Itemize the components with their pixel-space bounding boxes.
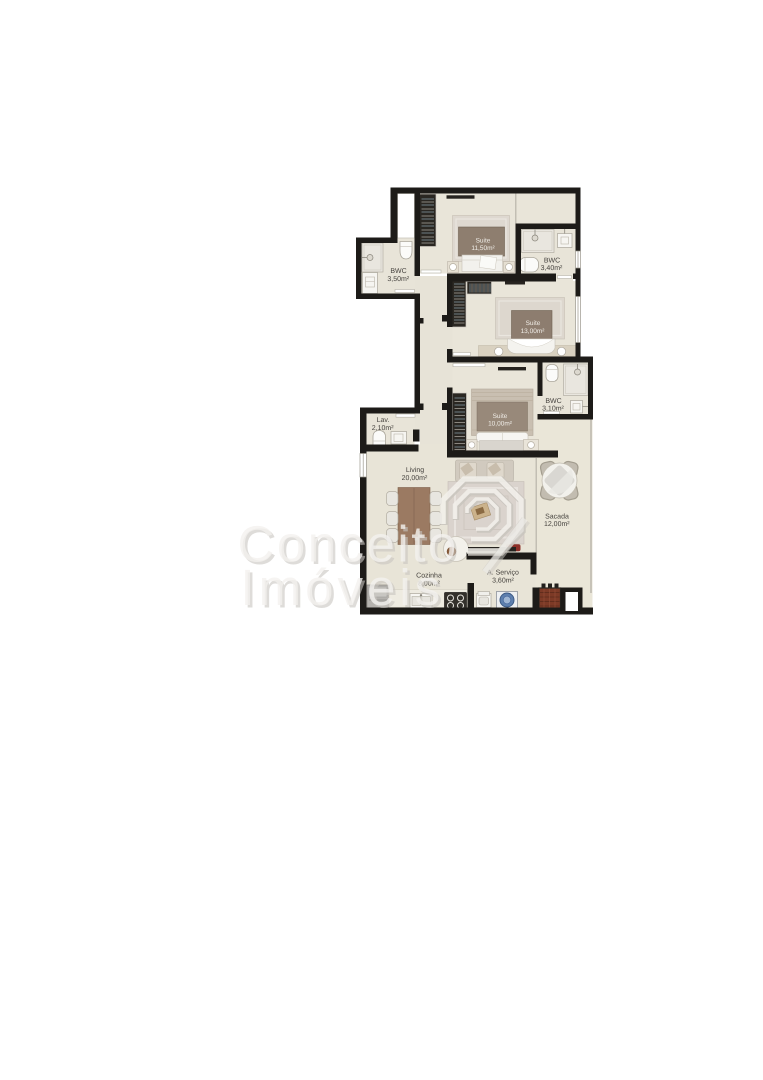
svg-text:Suite: Suite <box>526 320 541 327</box>
svg-text:Imóveis: Imóveis <box>241 559 445 616</box>
svg-text:10,00m²: 10,00m² <box>488 421 513 428</box>
svg-text:BWC: BWC <box>390 268 406 275</box>
svg-text:Suite: Suite <box>476 238 491 245</box>
svg-text:20,00m²: 20,00m² <box>402 475 428 482</box>
svg-text:3,40m²: 3,40m² <box>541 265 563 272</box>
svg-text:2,10m²: 2,10m² <box>372 425 394 432</box>
svg-text:Lav.: Lav. <box>377 417 390 424</box>
svg-text:13,00m²: 13,00m² <box>521 328 546 335</box>
svg-text:BWC: BWC <box>545 398 561 405</box>
svg-text:3,50m²: 3,50m² <box>387 276 409 283</box>
svg-text:Sacada: Sacada <box>545 512 569 520</box>
svg-text:3,60m²: 3,60m² <box>492 577 514 584</box>
svg-text:Living: Living <box>406 466 424 474</box>
svg-text:BWC: BWC <box>544 258 560 265</box>
svg-text:3,10m²: 3,10m² <box>542 405 564 412</box>
svg-text:11,50m²: 11,50m² <box>471 245 495 252</box>
svg-text:12,00m²: 12,00m² <box>544 521 570 528</box>
svg-text:Suite: Suite <box>493 413 508 420</box>
